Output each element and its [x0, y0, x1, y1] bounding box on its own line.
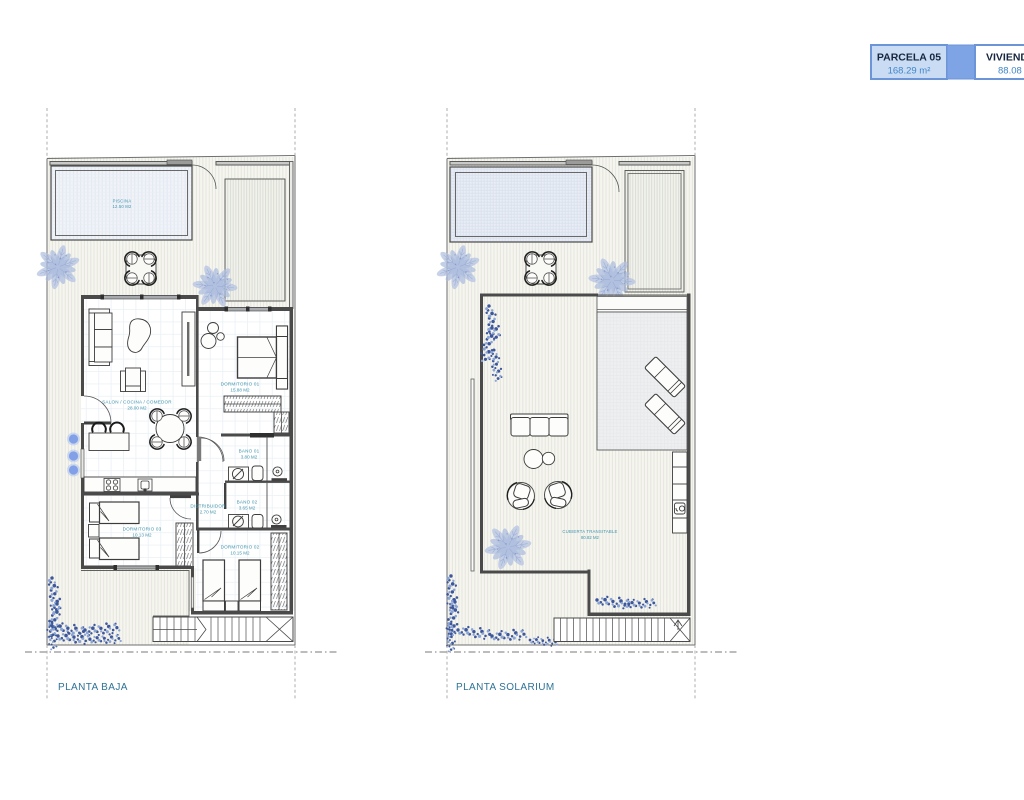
svg-text:28.00 M2: 28.00 M2 — [127, 406, 147, 411]
svg-text:PARCELA 05: PARCELA 05 — [877, 52, 941, 64]
svg-text:PISCINA: PISCINA — [113, 199, 132, 204]
svg-text:BANO 01: BANO 01 — [239, 449, 260, 454]
svg-text:10.13 M2: 10.13 M2 — [132, 533, 152, 538]
svg-text:15.88 M2: 15.88 M2 — [230, 388, 250, 393]
svg-text:2.70 M2: 2.70 M2 — [200, 510, 217, 515]
svg-text:168.29 m²: 168.29 m² — [888, 66, 931, 77]
svg-text:DORMITORIO 02: DORMITORIO 02 — [221, 545, 260, 550]
svg-text:DISTRIBUIDOR: DISTRIBUIDOR — [190, 504, 226, 509]
svg-text:3.65 M2: 3.65 M2 — [239, 506, 256, 511]
svg-text:BANO 02: BANO 02 — [237, 500, 258, 505]
svg-text:DORMITORIO 01: DORMITORIO 01 — [221, 382, 260, 387]
svg-text:10.15 M2: 10.15 M2 — [230, 551, 250, 556]
svg-text:3.80 M2: 3.80 M2 — [241, 455, 258, 460]
svg-text:VIVIENDA: VIVIENDA — [986, 52, 1024, 64]
svg-text:12.50 M2: 12.50 M2 — [112, 204, 132, 209]
svg-text:PLANTA BAJA: PLANTA BAJA — [58, 682, 128, 693]
svg-text:80.82 M2: 80.82 M2 — [581, 535, 600, 540]
svg-text:88.08 m: 88.08 m — [998, 66, 1024, 77]
svg-text:PLANTA SOLARIUM: PLANTA SOLARIUM — [456, 682, 555, 693]
svg-text:DORMITORIO 03: DORMITORIO 03 — [123, 527, 162, 532]
svg-text:CUBIERTA TRANSITABLE: CUBIERTA TRANSITABLE — [562, 529, 617, 534]
svg-text:SALON / COCINA / COMEDOR: SALON / COCINA / COMEDOR — [102, 400, 172, 405]
